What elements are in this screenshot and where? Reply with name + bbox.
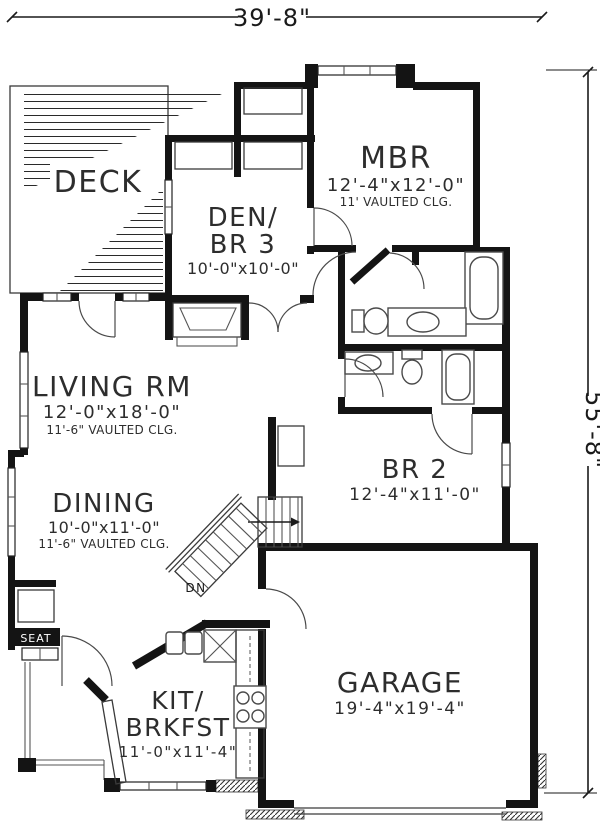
dimension-top: 39'-8" [7, 4, 547, 32]
garage-size: 19'-4"x19'-4" [334, 699, 466, 719]
mbr-closet [244, 88, 302, 114]
floor-plan-canvas: SEAT 39'-8" 55'-8" DECK DEN/ BR 3 10'-0"… [0, 0, 600, 824]
den-double-door-right-arc [278, 303, 307, 332]
master-bath-toilet [352, 308, 388, 334]
dining-ceiling-note: 11'-6" VAULTED CLG. [38, 537, 169, 551]
bath2-vanity [345, 352, 393, 374]
dining-label: DINING [52, 489, 155, 519]
living-label: LIVING RM [32, 370, 192, 403]
dining-west-window [8, 468, 15, 556]
br2-east-window [502, 443, 510, 487]
room-labels: DECK DEN/ BR 3 10'-0"x10'-0" MBR 12'-4"x… [32, 141, 481, 761]
br2-label: BR 2 [382, 455, 449, 485]
shower-wall [352, 250, 388, 282]
garage-door-opening [294, 808, 506, 814]
kit-label-line2: BRKFST [126, 713, 231, 742]
garage-door-arc [266, 589, 306, 629]
deck-label: DECK [54, 165, 143, 200]
stairs-direction-arrow [291, 518, 300, 527]
den-deck-door [165, 180, 172, 234]
stairs-diagonal-run [166, 494, 271, 600]
master-bath-vanity [388, 308, 466, 336]
bath-fixtures [345, 252, 503, 404]
living-west-window [20, 352, 28, 448]
living-size: 12'-0"x18'-0" [43, 402, 181, 423]
den-closet [175, 142, 232, 169]
mbr-ceiling-note: 11' VAULTED CLG. [340, 195, 453, 209]
bath2-tub [442, 350, 474, 404]
br2-size: 12'-4"x11'-0" [349, 485, 481, 505]
mbr-door-arc [314, 208, 352, 246]
window-seat: SEAT [12, 628, 60, 646]
living-north-window-2 [123, 293, 149, 301]
den-double-door-left-arc [249, 303, 278, 332]
dimension-right: 55'-8" [544, 67, 600, 798]
den-size: 10'-0"x10'-0" [187, 259, 299, 278]
living-north-window-1 [43, 293, 71, 301]
master-bath-door-arc [313, 252, 356, 295]
kit-size: 11'-0"x11'-4" [119, 743, 238, 761]
deck-door-arc [79, 301, 115, 337]
garage-label: GARAGE [337, 666, 463, 699]
kit-label-line1: KIT/ [151, 686, 204, 715]
entry-door-arc [62, 636, 112, 686]
entry-corner-wall [86, 680, 106, 700]
master-bath-tub [465, 252, 503, 324]
kitchen-range [234, 686, 266, 728]
window-seat-label: SEAT [20, 632, 51, 645]
overall-height-dimension: 55'-8" [580, 391, 600, 469]
hall-closet [244, 142, 302, 169]
deck-hatch-lower [60, 188, 163, 291]
kitchen-bay-wall [102, 700, 126, 784]
mbr-size: 12'-4"x12'-0" [327, 175, 465, 196]
br2-door-arc [432, 414, 472, 454]
mbr-label: MBR [360, 141, 432, 176]
kitchen-south-window [120, 782, 206, 790]
kitchen-corner-cabinet [204, 630, 236, 662]
stairs-dn-label: DN [185, 581, 206, 595]
mbr-bumpout-window [318, 66, 396, 75]
floor-plan: SEAT 39'-8" 55'-8" DECK DEN/ BR 3 10'-0"… [0, 0, 600, 824]
living-ceiling-note: 11'-6" VAULTED CLG. [46, 423, 177, 437]
entry-closet [18, 590, 54, 622]
den-label-line1: DEN/ [208, 203, 279, 233]
den-label-line2: BR 3 [210, 230, 277, 260]
linen-closet [278, 426, 304, 466]
fireplace [165, 295, 249, 346]
window-seat-window [22, 648, 58, 660]
overall-width-dimension: 39'-8" [233, 4, 311, 32]
dining-size: 10'-0"x11'-0" [48, 518, 160, 537]
bath2-toilet [402, 350, 422, 384]
